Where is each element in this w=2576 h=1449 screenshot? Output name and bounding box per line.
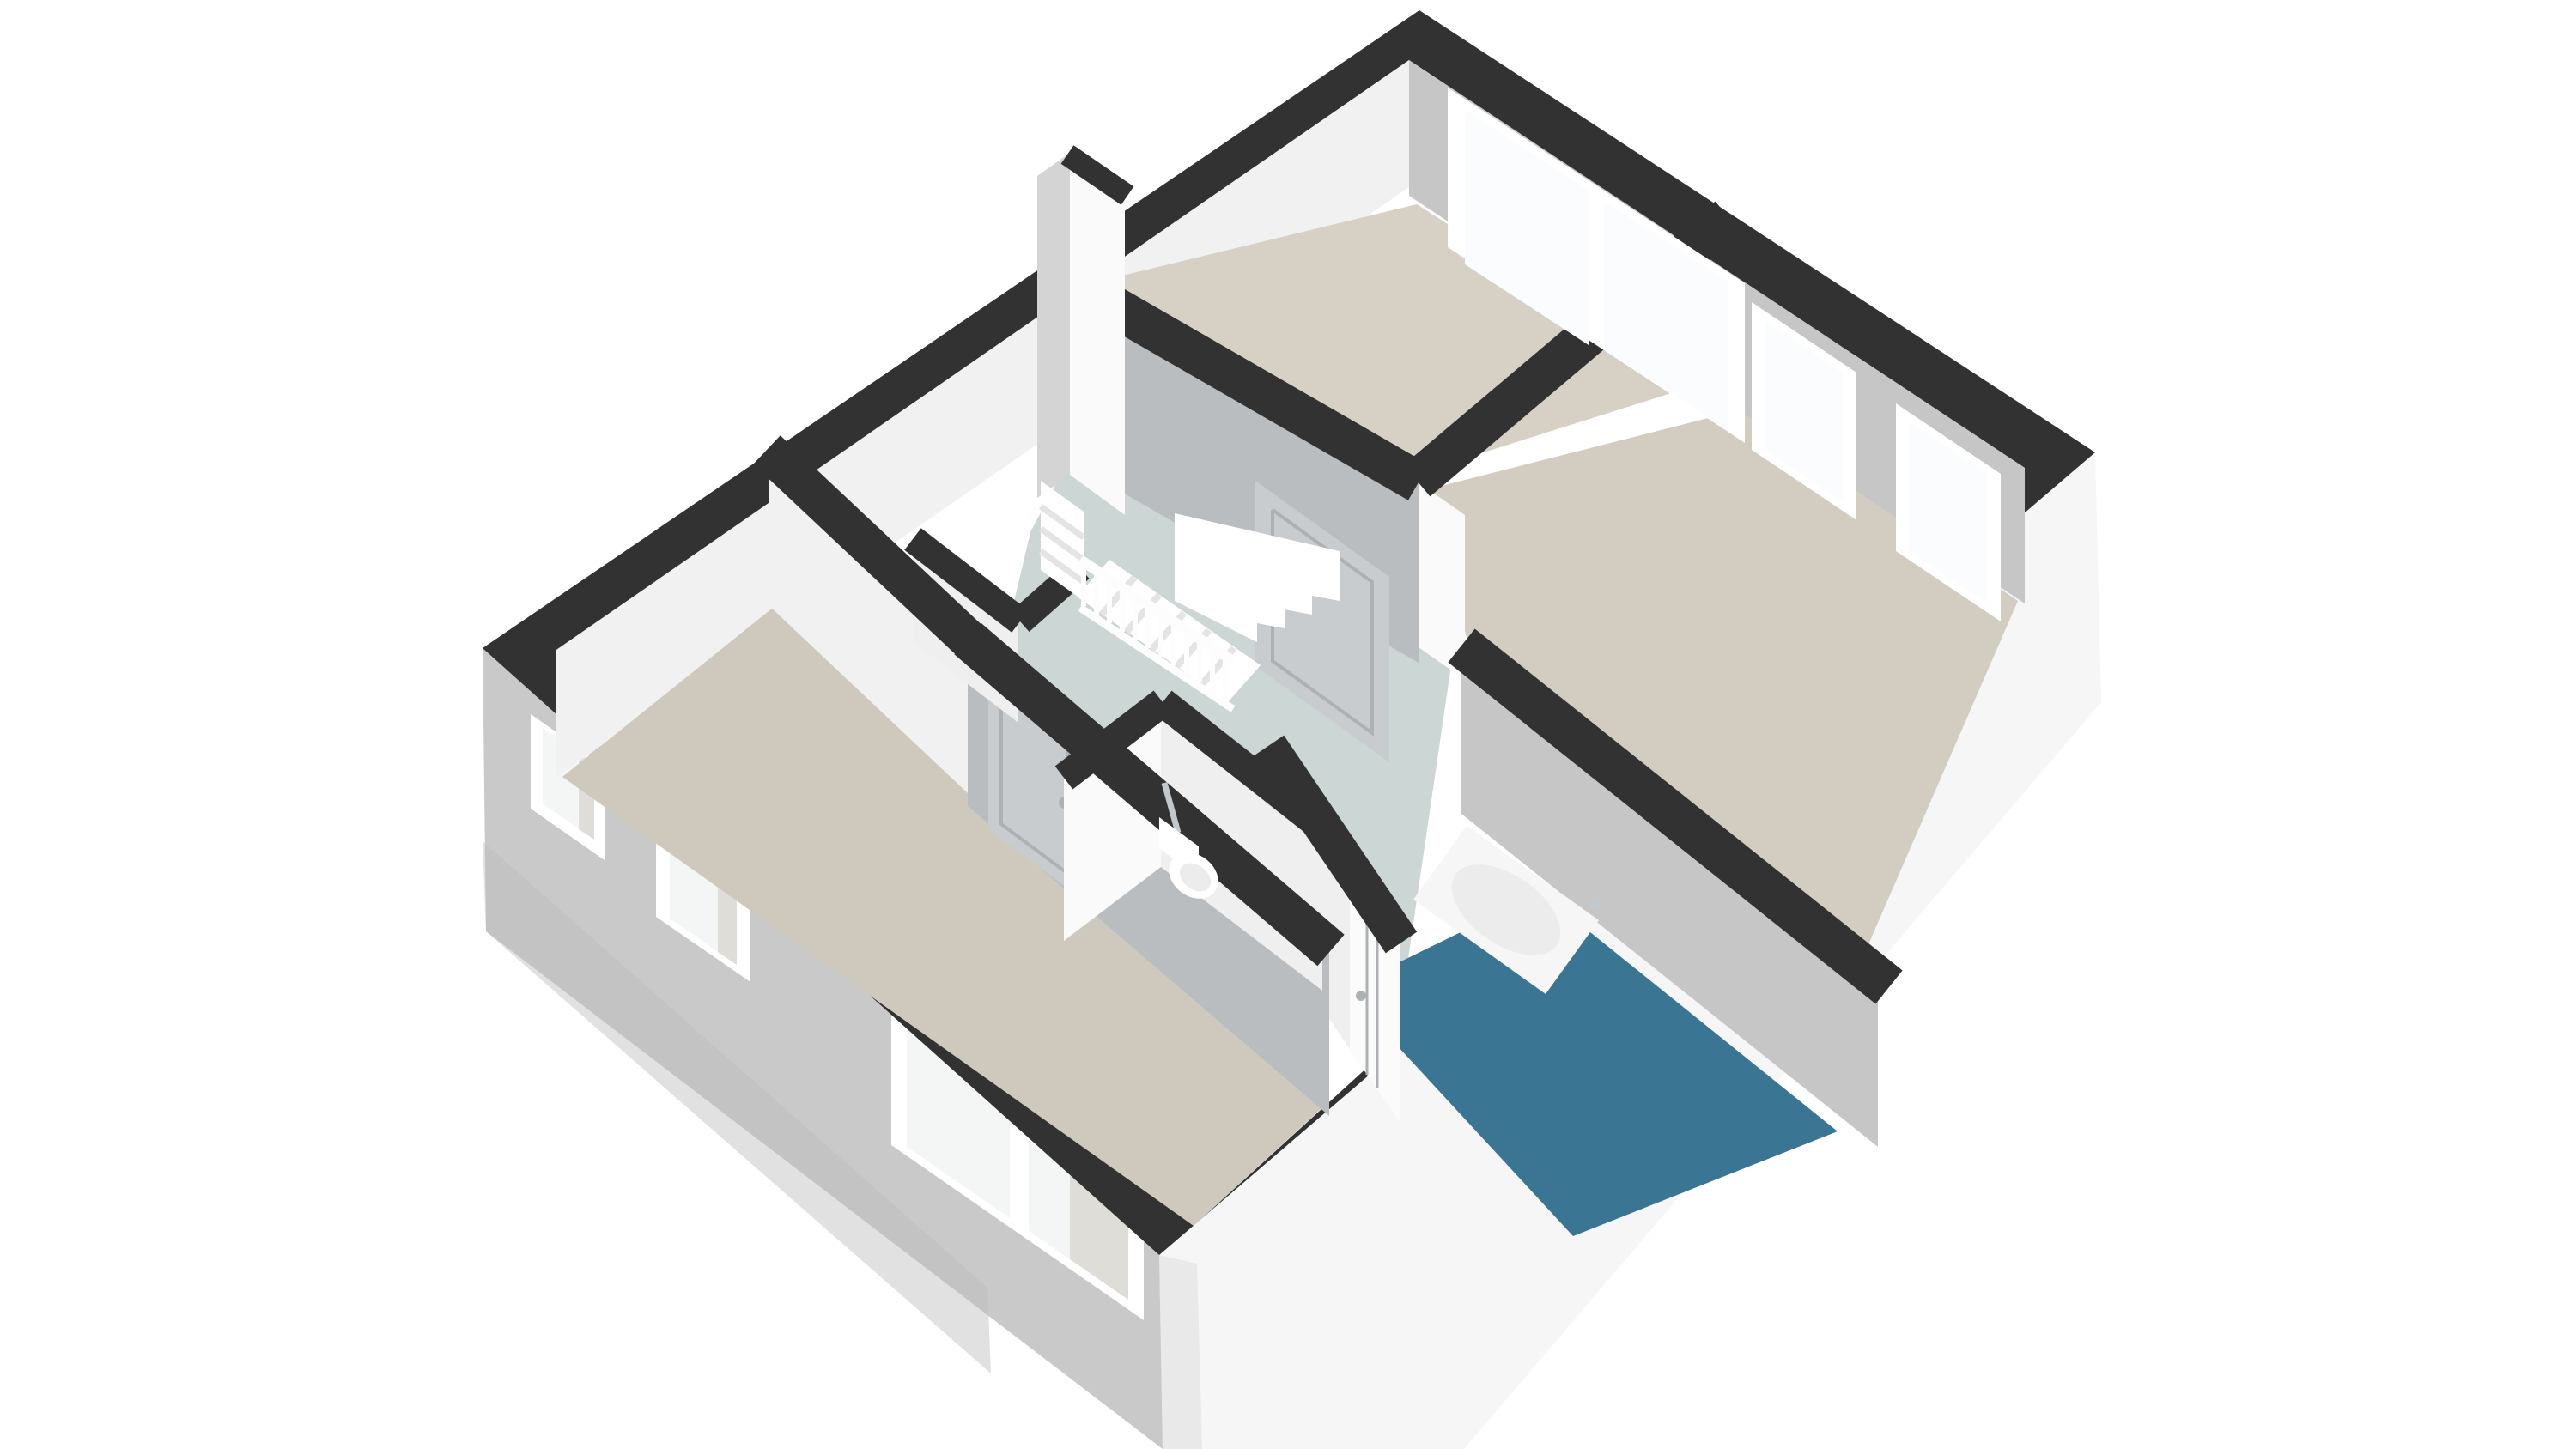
exterior-corner-shade: [1159, 1255, 1202, 1449]
floor-plan-3d-view: [0, 0, 2576, 1449]
stairwell-head-wall: [1037, 153, 1127, 515]
bathtub-faucet: [1588, 897, 1600, 909]
door-handle: [1356, 991, 1366, 1001]
stairwell-head-wall-face: [1070, 153, 1125, 515]
floor-plan-canvas: [0, 0, 2576, 1449]
stairwell-head-wall-side: [1037, 153, 1070, 498]
